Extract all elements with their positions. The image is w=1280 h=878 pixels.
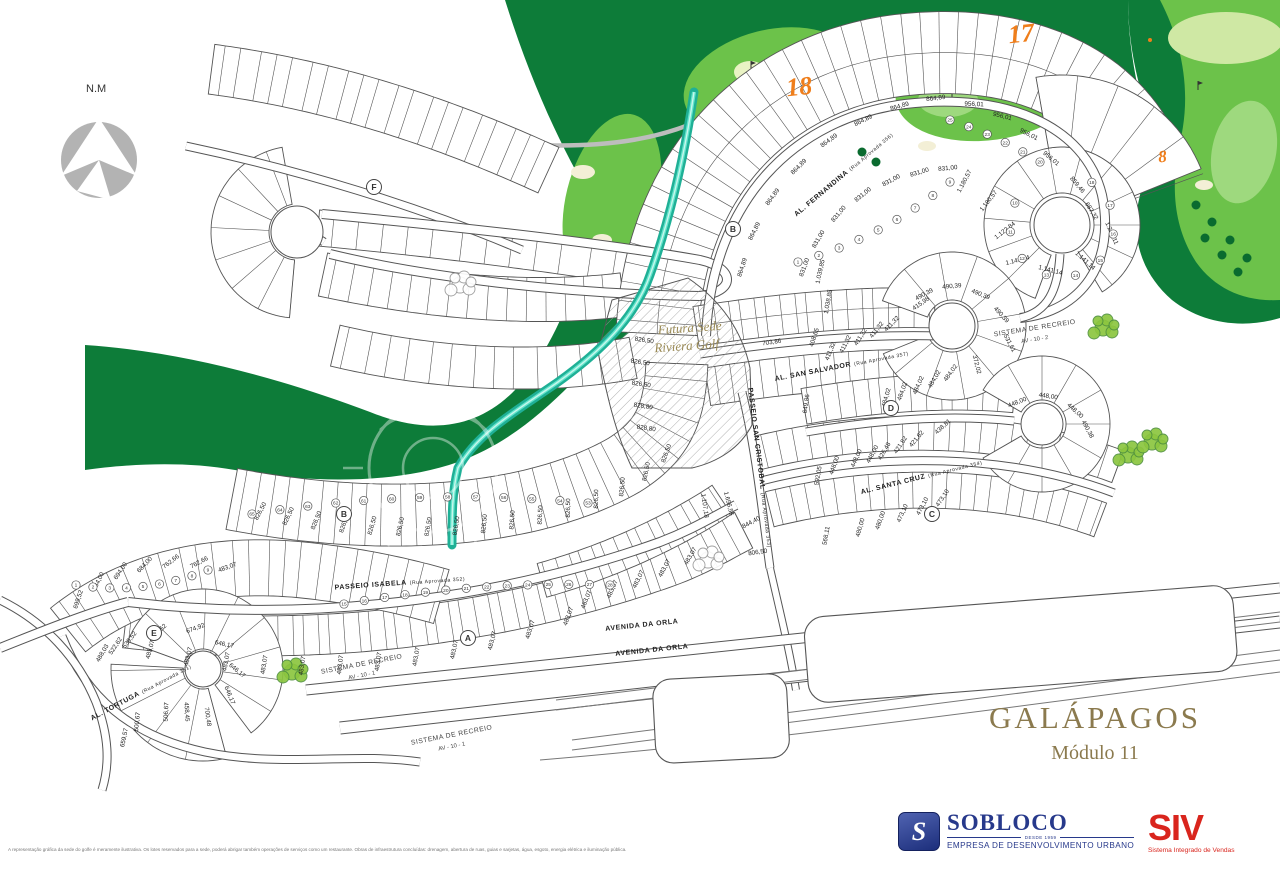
lot-area-label: 480,00 xyxy=(855,517,867,538)
lot-number: 53 xyxy=(585,501,591,507)
compass-label: N.M xyxy=(86,83,106,95)
lot-number: 25 xyxy=(546,582,552,588)
lot-number: 17 xyxy=(382,595,388,601)
lot-number: 21 xyxy=(464,586,470,592)
lot-area-label: 864,89 xyxy=(747,221,762,242)
lot-area-label: 831,00 xyxy=(938,164,958,173)
lot-area-label: 864,89 xyxy=(736,257,749,278)
tree xyxy=(1234,268,1243,277)
lot-area-label: 864,89 xyxy=(790,157,809,176)
tree xyxy=(1192,201,1201,210)
tree xyxy=(282,660,292,670)
sobloco-s-icon: S xyxy=(898,812,940,851)
lot-number: 61 xyxy=(361,498,367,504)
tree xyxy=(698,548,708,558)
lot-number: 4 xyxy=(858,237,861,243)
lot-area-label: 1.180,57 xyxy=(956,168,974,193)
lot-number: 65 xyxy=(249,512,255,518)
block-letter: B xyxy=(730,224,736,234)
tee-marker xyxy=(1148,38,1152,42)
lot-number: 26 xyxy=(566,582,572,588)
lot-number: 2 xyxy=(817,253,820,259)
lot-number: 64 xyxy=(277,507,283,513)
lot-number: 59 xyxy=(417,495,423,501)
sobloco-since: DESDE 1959 xyxy=(1025,835,1057,840)
lot-area-label: 844,40 xyxy=(741,515,762,530)
block-letter: D xyxy=(888,403,894,413)
lot-area-label: 659,57 xyxy=(119,727,130,748)
lot-number: 60 xyxy=(389,496,395,502)
lot-number: 3 xyxy=(108,586,111,592)
rule-line xyxy=(1060,837,1134,838)
sand-bunker xyxy=(1195,180,1213,190)
lot-number: 4 xyxy=(125,585,128,591)
lot-number: 24 xyxy=(525,583,531,589)
rough-pale xyxy=(1168,12,1280,64)
lot-area-label: 826,50 xyxy=(508,510,516,530)
lot-area-label: 956,01 xyxy=(964,101,984,109)
lot-number: 20 xyxy=(1037,160,1043,166)
project-title: GALÁPAGOS xyxy=(955,700,1235,736)
lot-number: 58 xyxy=(445,495,451,501)
tree xyxy=(714,552,724,562)
lot-number: 2 xyxy=(92,585,95,591)
rule-line xyxy=(947,837,1021,838)
sobloco-tagline: EMPRESA DE DESENVOLVIMENTO URBANO xyxy=(947,841,1134,850)
lot-number: 14 xyxy=(1073,273,1079,279)
block-letter: E xyxy=(151,628,157,638)
tree xyxy=(1201,234,1210,243)
lot-number: 15 xyxy=(1098,258,1104,264)
block-letter: B xyxy=(341,509,347,519)
title-block: GALÁPAGOS Módulo 11 xyxy=(955,700,1235,765)
cul-de-sac xyxy=(929,303,975,349)
lot-number: 5 xyxy=(142,584,145,590)
tree xyxy=(693,559,705,571)
tree xyxy=(1137,441,1149,453)
tree xyxy=(1093,316,1103,326)
tree-cluster-green xyxy=(1137,428,1168,453)
cul-de-sac xyxy=(1021,403,1063,445)
lot-number: 10 xyxy=(1012,201,1018,207)
lot-area-label: 864,89 xyxy=(764,187,781,207)
tree xyxy=(1109,320,1119,330)
lot-number: 11 xyxy=(1008,229,1013,235)
lot-number: 15 xyxy=(341,602,347,608)
lot-number: 62 xyxy=(333,501,339,507)
lot-number: 17 xyxy=(1107,203,1113,209)
lot-number: 54 xyxy=(557,498,563,504)
watermark-ray xyxy=(388,390,398,407)
lot-area-label: 826,50 xyxy=(565,498,572,518)
lot-number: 16 xyxy=(1111,232,1117,238)
siv-logo: SIV Sistema Integrado de Vendas xyxy=(1148,810,1235,855)
lot-number: 25 xyxy=(947,118,953,124)
block-letter: F xyxy=(371,182,376,192)
lot-number: 1 xyxy=(797,260,800,266)
lot-number: 23 xyxy=(985,132,991,138)
lot-number: 20 xyxy=(443,588,449,594)
lot-number: 16 xyxy=(362,598,368,604)
lot-area-label: 480,00 xyxy=(874,510,887,531)
sobloco-since-row: DESDE 1959 xyxy=(947,835,1134,840)
tree xyxy=(1118,443,1128,453)
sand-bunker xyxy=(571,165,595,179)
lot-number: 9 xyxy=(207,568,210,574)
lot-number: 12 xyxy=(1019,256,1025,262)
lot-area-label: 831,00 xyxy=(830,204,848,224)
lot-area-label: 831,00 xyxy=(853,186,873,204)
block-letter: A xyxy=(465,633,471,643)
lot-number: 55 xyxy=(529,496,535,502)
tree xyxy=(466,277,476,287)
site-plan-page: 864,89864,89864,89864,89864,89864,89864,… xyxy=(0,0,1280,878)
lot-area-label: 506,67 xyxy=(163,702,171,722)
tree xyxy=(1208,218,1217,227)
tree xyxy=(277,671,289,683)
lot-number: 21 xyxy=(1020,150,1026,156)
lot-number: 8 xyxy=(931,193,934,199)
lot-number: 27 xyxy=(587,582,593,588)
lot-number: 63 xyxy=(305,504,311,510)
lot-number: 22 xyxy=(1003,140,1009,146)
tree xyxy=(445,284,457,296)
lot-area-label: 483,07 xyxy=(449,639,460,660)
lot-number: 9 xyxy=(949,180,952,186)
lot-number: 7 xyxy=(174,578,177,584)
street-label: AL. FERNANDINA(Rua Aprovada 356) xyxy=(793,132,894,219)
tree xyxy=(450,273,460,283)
tree xyxy=(1088,327,1100,339)
lot-number: 28 xyxy=(607,583,613,589)
lot-area-label: 458,45 xyxy=(182,702,190,722)
tree xyxy=(1158,434,1168,444)
block-letter: C xyxy=(929,509,935,519)
lot-area-label: 826,50 xyxy=(537,505,545,525)
lot-area-label: 831,00 xyxy=(909,166,930,178)
sobloco-wordmark: SOBLOCO xyxy=(947,812,1134,834)
lot-number: 5 xyxy=(877,228,880,234)
lot-number: 7 xyxy=(914,206,917,212)
lot-number: 6 xyxy=(896,217,899,223)
map-disclaimer: A representação gráfica da sede do golfe… xyxy=(8,847,708,852)
module-subtitle: Módulo 11 xyxy=(955,742,1235,765)
lot-area-label: 568,11 xyxy=(821,525,831,545)
siv-tagline: Sistema Integrado de Vendas xyxy=(1148,848,1235,855)
lot-number: 1 xyxy=(75,583,78,589)
lot-number: 13 xyxy=(1044,272,1050,278)
lot-area-label: 826,50 xyxy=(593,489,600,509)
lot-area-label: 1.039,85 xyxy=(815,258,827,284)
reserved-block xyxy=(652,673,790,764)
street-label: AVENIDA DA ORLA xyxy=(605,618,679,633)
lot-number: 19 xyxy=(423,590,429,596)
tree xyxy=(1226,236,1235,245)
siv-wordmark: SIV xyxy=(1148,810,1235,846)
lot-number: 6 xyxy=(158,582,161,588)
lot-area-label: 831,00 xyxy=(881,173,902,188)
tree xyxy=(1243,254,1252,263)
lot-number: 18 xyxy=(402,592,408,598)
watermark-ray xyxy=(468,390,478,407)
lot-number: 57 xyxy=(473,495,479,501)
tree xyxy=(872,158,881,167)
lot-area-label: 831,00 xyxy=(811,229,827,250)
lot-number: 8 xyxy=(191,573,194,579)
sobloco-logo: S SOBLOCO DESDE 1959 EMPRESA DE DESENVOL… xyxy=(898,812,1134,851)
tree xyxy=(1218,251,1227,260)
golf-hole-number: 18 xyxy=(785,71,814,103)
golf-hole-number: 17 xyxy=(1007,18,1037,50)
lot-number: 22 xyxy=(484,585,490,591)
tree xyxy=(1142,430,1152,440)
lot-number: 24 xyxy=(966,124,972,130)
lot-number: 56 xyxy=(501,495,507,501)
tree xyxy=(1113,454,1125,466)
lot-number: 23 xyxy=(505,583,511,589)
tree-cluster-green xyxy=(1088,314,1119,339)
recreation-area-code: AV - 10 - 1 xyxy=(438,741,466,752)
lot-number: 18 xyxy=(1089,180,1095,186)
cul-de-sac xyxy=(1034,197,1090,253)
lot-area-label: 483,07 xyxy=(411,646,421,667)
cul-de-sac xyxy=(271,206,323,258)
sand-bunker xyxy=(918,141,936,151)
lot-number: 3 xyxy=(838,246,841,252)
